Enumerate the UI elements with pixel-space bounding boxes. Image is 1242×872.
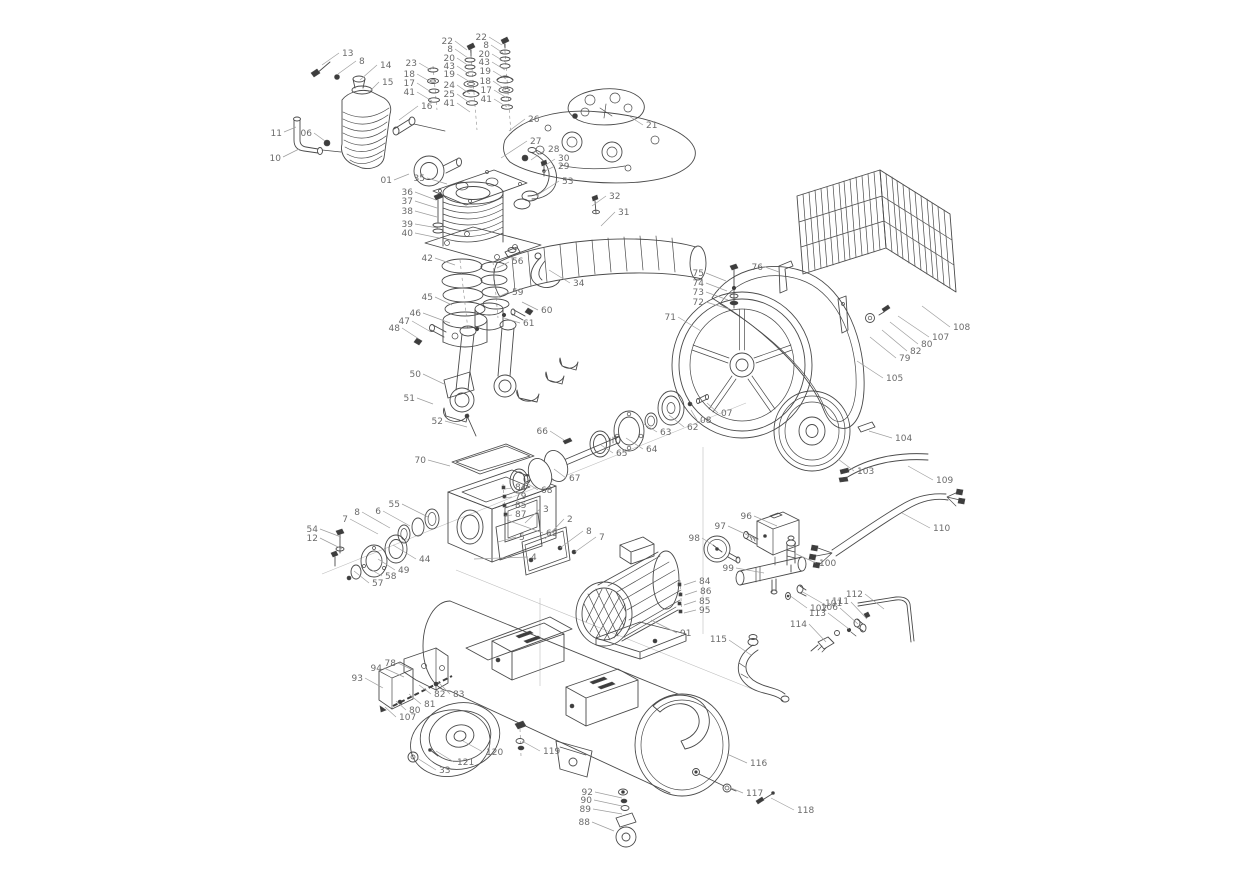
- part-label: 79: [899, 354, 911, 364]
- capacitor-drawing: [379, 648, 452, 712]
- part-label: 120: [486, 748, 503, 758]
- valve-stack-drawings: [428, 37, 514, 134]
- part-label: 76: [752, 263, 764, 273]
- part-label: 31: [618, 208, 629, 218]
- part-label: 93: [352, 674, 363, 684]
- leader-line: [320, 538, 342, 549]
- part-label: 63: [660, 428, 671, 438]
- part-label: 71: [665, 313, 676, 323]
- part-label: 114: [790, 620, 807, 630]
- part-label: 47: [399, 317, 410, 327]
- leader-line: [595, 792, 622, 798]
- part-label: 96: [741, 512, 753, 522]
- leader-line: [283, 149, 299, 157]
- leader-line: [370, 569, 382, 576]
- part-label: 52: [432, 417, 443, 427]
- part-label: 98: [689, 534, 701, 544]
- piston-drawings: [414, 259, 533, 347]
- leader-line: [765, 267, 779, 272]
- leader-line: [789, 595, 807, 608]
- part-label: 73: [693, 288, 704, 298]
- leader-line: [398, 663, 413, 670]
- leader-line: [419, 63, 431, 70]
- part-label: 61: [523, 319, 534, 329]
- drain-plug-drawing: [723, 784, 736, 792]
- leader-line: [684, 601, 696, 605]
- part-label: 119: [543, 747, 560, 757]
- part-label: 108: [953, 323, 970, 333]
- part-label: 97: [715, 522, 726, 532]
- leader-line: [492, 54, 505, 62]
- part-label: 01: [381, 176, 392, 186]
- leader-line: [417, 83, 431, 92]
- part-label: 38: [402, 207, 414, 217]
- part-label: 112: [846, 590, 863, 600]
- leader-line: [399, 106, 418, 120]
- part-label: 75: [693, 269, 704, 279]
- motor-drawing: [576, 537, 686, 659]
- part-label: 6: [375, 507, 381, 517]
- part-label: 41: [481, 95, 492, 105]
- leader-line: [685, 591, 697, 595]
- leader-line: [417, 758, 436, 770]
- part-label: 5: [519, 533, 525, 543]
- part-label: 45: [422, 293, 433, 303]
- leader-line: [415, 211, 437, 217]
- part-label: 15: [382, 78, 393, 88]
- part-label: 84: [699, 577, 711, 587]
- part-label: 50: [410, 370, 422, 380]
- leader-line: [402, 504, 428, 517]
- part-label: 115: [710, 635, 727, 645]
- part-label: 42: [422, 254, 433, 264]
- part-label: 41: [404, 88, 415, 98]
- part-label: 56: [512, 257, 524, 267]
- part-label: 7: [599, 533, 605, 543]
- leader-line: [594, 800, 622, 806]
- leader-line: [365, 678, 383, 688]
- leader-line: [457, 66, 469, 74]
- part-label: 46: [410, 309, 422, 319]
- leader-line: [706, 292, 728, 300]
- part-label: 113: [809, 609, 826, 619]
- leader-line: [417, 398, 433, 404]
- leader-line: [417, 92, 432, 101]
- caster-drawing: [616, 789, 636, 847]
- part-label: 33: [439, 766, 450, 776]
- part-label: 12: [307, 534, 318, 544]
- hose-drawing: [738, 635, 789, 703]
- part-label: 48: [389, 324, 401, 334]
- leader-line: [507, 520, 543, 533]
- part-label: 110: [933, 524, 950, 534]
- part-label: 118: [797, 806, 814, 816]
- leader-line: [378, 559, 395, 570]
- part-label: 86: [700, 587, 712, 597]
- part-label: 35: [414, 174, 425, 184]
- aftercooler-drawing: [494, 195, 706, 297]
- part-label: 8: [354, 508, 360, 518]
- leader-line: [801, 591, 822, 603]
- part-label: 116: [750, 759, 767, 769]
- leader-line: [505, 488, 512, 489]
- part-label: 2: [567, 515, 573, 525]
- part-label: 107: [932, 333, 949, 343]
- part-label: 109: [936, 476, 953, 486]
- part-label: 80: [921, 340, 933, 350]
- leader-line: [593, 809, 622, 814]
- part-label: 41: [444, 99, 455, 109]
- part-label: 13: [342, 49, 353, 59]
- leader-line: [902, 513, 930, 528]
- part-label: 107: [399, 713, 416, 723]
- leader-line: [463, 741, 483, 752]
- part-label: 94: [371, 664, 383, 674]
- leader-line: [828, 613, 849, 629]
- leader-line: [394, 174, 409, 180]
- part-label: 27: [530, 137, 541, 147]
- part-label: 66: [537, 427, 549, 437]
- leader-line: [354, 571, 369, 583]
- part-label: 10: [270, 154, 282, 164]
- pulley-drawing: [774, 391, 875, 471]
- belt-drawing: [712, 266, 864, 428]
- leader-line: [840, 608, 858, 624]
- part-label: 4: [531, 553, 537, 563]
- part-label: 34: [573, 279, 585, 289]
- part-label: 21: [646, 121, 657, 131]
- leader-line: [727, 754, 747, 763]
- part-label: 81: [424, 700, 435, 710]
- part-label: 55: [389, 500, 400, 510]
- part-label: 8: [586, 527, 592, 537]
- flywheel-drawing: [672, 292, 812, 438]
- part-label: 8: [359, 57, 365, 67]
- leader-line: [870, 337, 896, 358]
- leader-line: [383, 511, 410, 526]
- part-label: 06: [301, 129, 313, 139]
- part-label: 121: [457, 758, 474, 768]
- part-label: 23: [406, 59, 417, 69]
- leader-line: [492, 62, 505, 70]
- leader-line: [417, 74, 431, 82]
- part-label: 99: [723, 564, 735, 574]
- leader-line: [412, 321, 431, 332]
- part-label: 37: [402, 197, 413, 207]
- leader-line: [350, 519, 378, 534]
- leader-line: [869, 431, 892, 438]
- part-label: 44: [419, 555, 431, 565]
- part-label: 68: [541, 486, 553, 496]
- cylinder-block-drawing: [425, 182, 541, 262]
- cylinder-bolt-stack-drawing: [433, 193, 443, 233]
- part-label: 64: [646, 445, 658, 455]
- part-label: 87: [515, 510, 526, 520]
- leader-line: [728, 526, 756, 539]
- part-label: 104: [895, 434, 912, 444]
- part-label: 103: [857, 467, 874, 477]
- part-label: 105: [886, 374, 903, 384]
- leader-line: [435, 258, 455, 265]
- part-label: 83: [453, 690, 464, 700]
- leader-line: [525, 509, 540, 523]
- part-label: 29: [558, 162, 570, 172]
- part-label: 67: [569, 474, 580, 484]
- leader-line: [338, 61, 356, 74]
- part-label: 82: [434, 690, 445, 700]
- leader-line: [601, 212, 615, 226]
- part-label: 40: [402, 229, 414, 239]
- connecting-rod-drawings: [443, 320, 578, 436]
- wheel-drawing: [403, 695, 526, 783]
- part-label: 82: [910, 347, 921, 357]
- leader-line: [550, 431, 564, 440]
- part-label: 100: [819, 559, 836, 569]
- leader-line: [393, 545, 416, 559]
- leader-line: [428, 460, 450, 466]
- part-label: 19: [480, 67, 492, 77]
- part-label: 59: [512, 288, 524, 298]
- leader-line: [494, 99, 507, 107]
- part-label: 70: [415, 456, 427, 466]
- part-label: 62: [687, 423, 698, 433]
- leader-line: [592, 822, 614, 831]
- leader-line: [922, 306, 950, 327]
- leader-line: [415, 224, 438, 228]
- part-label: 88: [579, 818, 591, 828]
- crankshaft-drawing: [510, 391, 709, 493]
- part-label: 95: [699, 606, 710, 616]
- part-labels: 1381415161106100123181741228204319242541…: [270, 33, 971, 831]
- belt-guard-drawing: [797, 170, 956, 333]
- leader-line: [706, 273, 726, 281]
- part-label: 117: [746, 789, 763, 799]
- tank-drawing: [423, 601, 775, 804]
- valve-plate-drawing: [568, 89, 644, 125]
- leader-line: [522, 302, 538, 310]
- leader-line: [898, 316, 929, 337]
- part-label: 19: [444, 70, 456, 80]
- part-label: 91: [680, 629, 691, 639]
- part-label: 78: [385, 659, 397, 669]
- leader-line: [644, 424, 657, 432]
- leader-line: [314, 133, 325, 141]
- part-label: 57: [372, 579, 383, 589]
- leader-line: [415, 192, 436, 200]
- part-label: 3: [543, 505, 549, 515]
- leader-line: [435, 297, 452, 305]
- leader-line: [457, 74, 470, 82]
- cable-drawings: [809, 454, 965, 568]
- part-label: 69: [546, 529, 558, 539]
- leader-line: [522, 741, 540, 751]
- leader-line: [423, 313, 450, 323]
- leader-line: [423, 374, 444, 384]
- part-label: 51: [404, 394, 415, 404]
- diagram-canvas: 1381415161106100123181741228204319242541…: [0, 0, 1242, 872]
- leader-line: [455, 41, 467, 50]
- leader-line: [731, 788, 743, 793]
- part-label: 53: [562, 177, 573, 187]
- part-label: 32: [609, 192, 620, 202]
- part-label: 14: [380, 61, 392, 71]
- leader-line: [415, 233, 439, 238]
- leader-line: [455, 49, 468, 58]
- part-label: 7: [342, 515, 348, 525]
- leader-line: [436, 751, 454, 762]
- leader-line: [575, 537, 596, 552]
- part-label: 07: [721, 409, 732, 419]
- part-label: 08: [700, 416, 712, 426]
- part-label: 72: [693, 298, 704, 308]
- leader-line: [491, 45, 503, 53]
- leader-line: [651, 620, 677, 633]
- leader-line: [531, 150, 545, 160]
- part-label: 11: [271, 129, 282, 139]
- leader-line: [322, 53, 339, 65]
- part-label: 49: [398, 566, 410, 576]
- leader-line: [415, 201, 437, 208]
- leader-line: [684, 610, 696, 613]
- leader-line: [684, 581, 696, 585]
- leader-line: [427, 178, 447, 184]
- leader-line: [771, 798, 794, 810]
- part-label: 16: [421, 102, 433, 112]
- leader-line: [857, 361, 883, 378]
- leader-line: [402, 328, 419, 339]
- leader-line: [908, 466, 933, 480]
- head-fitting-drawing: [393, 117, 445, 135]
- part-label: 26: [528, 115, 540, 125]
- part-label: 58: [385, 572, 397, 582]
- part-label: 89: [580, 805, 592, 815]
- exploded-parts-diagram: 1381415161106100123181741228204319242541…: [0, 0, 1242, 872]
- intake-filter-drawing: [294, 62, 446, 169]
- leader-line: [360, 65, 377, 80]
- part-label: 60: [541, 306, 553, 316]
- leader-line: [489, 37, 502, 45]
- leader-line: [509, 119, 525, 131]
- leader-line: [809, 624, 826, 642]
- leader-line: [882, 330, 907, 351]
- part-label: 65: [616, 449, 627, 459]
